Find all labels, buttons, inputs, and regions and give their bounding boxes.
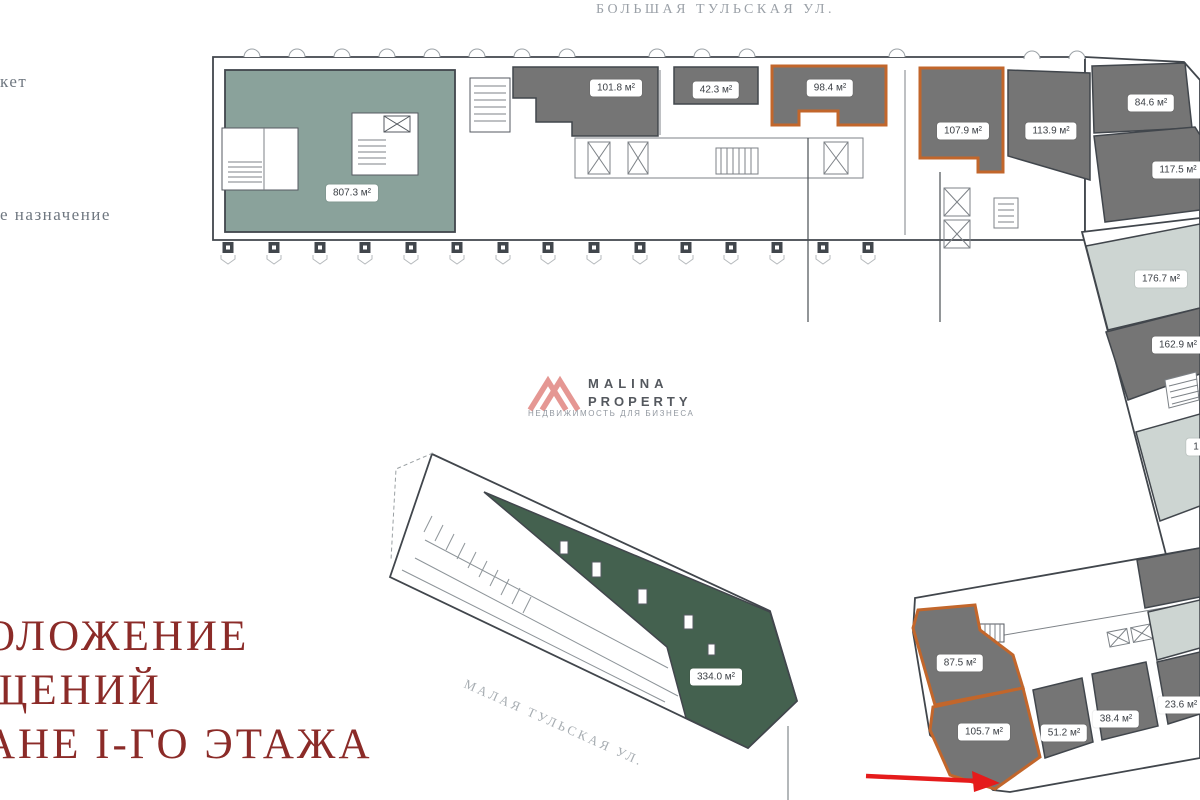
facade-columns — [221, 242, 875, 264]
unit-38-4 — [1092, 662, 1158, 740]
area-label-84: 84.6 м² — [1128, 95, 1174, 112]
page-title: ОЛОЖЕНИЕ ЩЕНИЙ АНЕ I-ГО ЭТАЖА — [0, 610, 373, 772]
area-label-51: 51.2 м² — [1041, 725, 1087, 742]
area-label-98: 98.4 м² — [807, 80, 853, 97]
area-label-38: 38.4 м² — [1093, 711, 1139, 728]
area-label-176: 176.7 м² — [1135, 271, 1187, 288]
area-label-113: 113.9 м² — [1025, 123, 1076, 140]
logo-name-line1: MALINA — [588, 376, 669, 391]
street-label-top: БОЛЬШАЯ ТУЛЬСКАЯ УЛ. — [596, 2, 835, 18]
area-label-117: 117.5 м² — [1152, 162, 1200, 179]
unit-107-9-highlighted — [920, 68, 1003, 172]
page-title-line1: ОЛОЖЕНИЕ — [0, 610, 373, 664]
area-label-105: 105.7 м² — [958, 724, 1010, 741]
floor-plan-page: { "streets": { "top": "БОЛЬШАЯ ТУЛЬСКАЯ … — [0, 0, 1200, 800]
page-title-line3: АНЕ I-ГО ЭТАЖА — [0, 718, 373, 772]
area-label-807: 807.3 м² — [326, 185, 378, 202]
page-title-line2: ЩЕНИЙ — [0, 664, 373, 718]
area-label-42: 42.3 м² — [693, 82, 739, 99]
logo-tagline: НЕДВИЖИМОСТЬ ДЛЯ БИЗНЕСА — [528, 409, 694, 418]
area-label-107: 107.9 м² — [937, 123, 989, 140]
area-label-334: 334.0 м² — [690, 669, 742, 686]
area-label-101: 101.8 м² — [590, 80, 642, 97]
unit-light-cut — [1136, 414, 1200, 521]
legend-item-free-purpose: е назначение — [0, 205, 111, 225]
area-label-162: 162.9 м² — [1152, 337, 1200, 354]
area-label-23: 23.6 м² — [1158, 697, 1200, 714]
logo-mark — [530, 381, 578, 410]
area-label-87: 87.5 м² — [937, 655, 983, 672]
legend-item-supermarket: кет — [0, 72, 27, 92]
unit-supermarket-807 — [222, 70, 455, 232]
wing-b-units — [1086, 224, 1200, 521]
logo-name-line2: PROPERTY — [588, 394, 692, 409]
area-label-cut: 1 — [1186, 439, 1200, 456]
